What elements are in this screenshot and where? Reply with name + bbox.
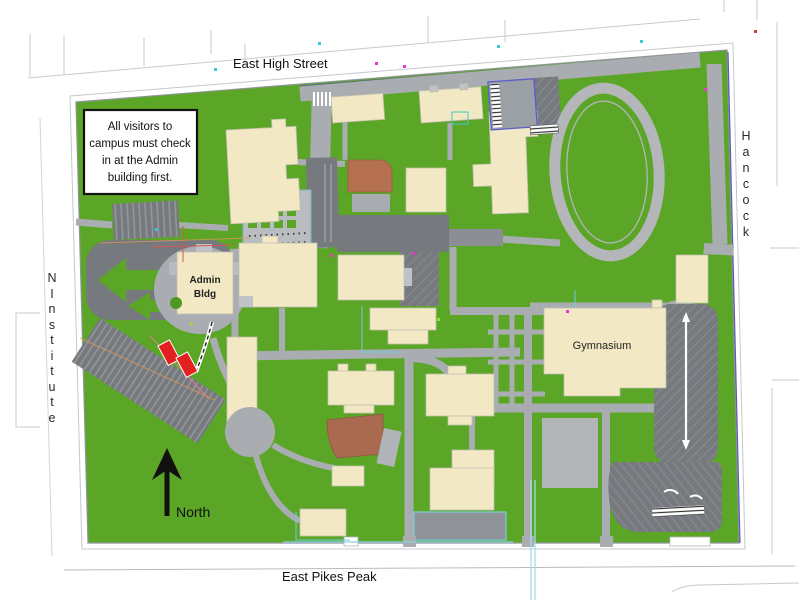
street-label-institute: N I n s t i t u t e (47, 271, 56, 425)
svg-text:n: n (743, 161, 750, 175)
building-center-small (406, 168, 446, 212)
svg-text:u: u (49, 380, 56, 394)
svg-text:I: I (50, 287, 53, 301)
svg-text:i: i (51, 349, 54, 363)
parking-rows-west (112, 201, 180, 240)
building-south-small-1 (300, 509, 346, 536)
north-label: North (176, 504, 210, 520)
svg-text:t: t (50, 333, 54, 347)
building-north-1 (331, 93, 385, 123)
building-south-small-2 (332, 466, 364, 486)
notice-line-2: campus must check (89, 138, 191, 150)
admin-label-line2: Bldg (194, 289, 216, 300)
building-north-annex (488, 79, 537, 130)
street-label-hancock: H a n c o c k (741, 129, 750, 239)
svg-text:n: n (49, 302, 56, 316)
campus-map: All visitors to campus must check in at … (0, 0, 799, 600)
svg-text:e: e (49, 411, 56, 425)
building-east-tall (676, 255, 708, 303)
building-south-2 (426, 366, 494, 425)
admin-label-line1: Admin (189, 275, 220, 286)
notice-box: All visitors to campus must check in at … (84, 110, 197, 194)
svg-text:H: H (741, 129, 750, 143)
paved-court (542, 418, 598, 488)
street-label-east-high: East High Street (233, 56, 328, 71)
notice-line-3: in at the Admin (102, 155, 178, 167)
parking-southeast (608, 462, 722, 532)
campus-map-svg: All visitors to campus must check in at … (0, 0, 799, 600)
notice-line-1: All visitors to (108, 121, 173, 133)
svg-text:k: k (743, 225, 750, 239)
street-label-east-pikes-peak: East Pikes Peak (282, 569, 377, 584)
svg-text:s: s (49, 318, 55, 332)
svg-text:a: a (743, 145, 750, 159)
svg-text:c: c (743, 177, 749, 191)
svg-text:t: t (50, 364, 54, 378)
svg-text:c: c (743, 209, 749, 223)
building-center-west (239, 236, 317, 307)
svg-text:t: t (50, 395, 54, 409)
building-center (338, 255, 412, 300)
svg-text:N: N (47, 271, 56, 285)
svg-text:o: o (743, 193, 750, 207)
notice-line-4: building first. (108, 172, 173, 184)
building-brown-north (348, 160, 392, 212)
gymnasium-label: Gymnasium (573, 340, 632, 352)
